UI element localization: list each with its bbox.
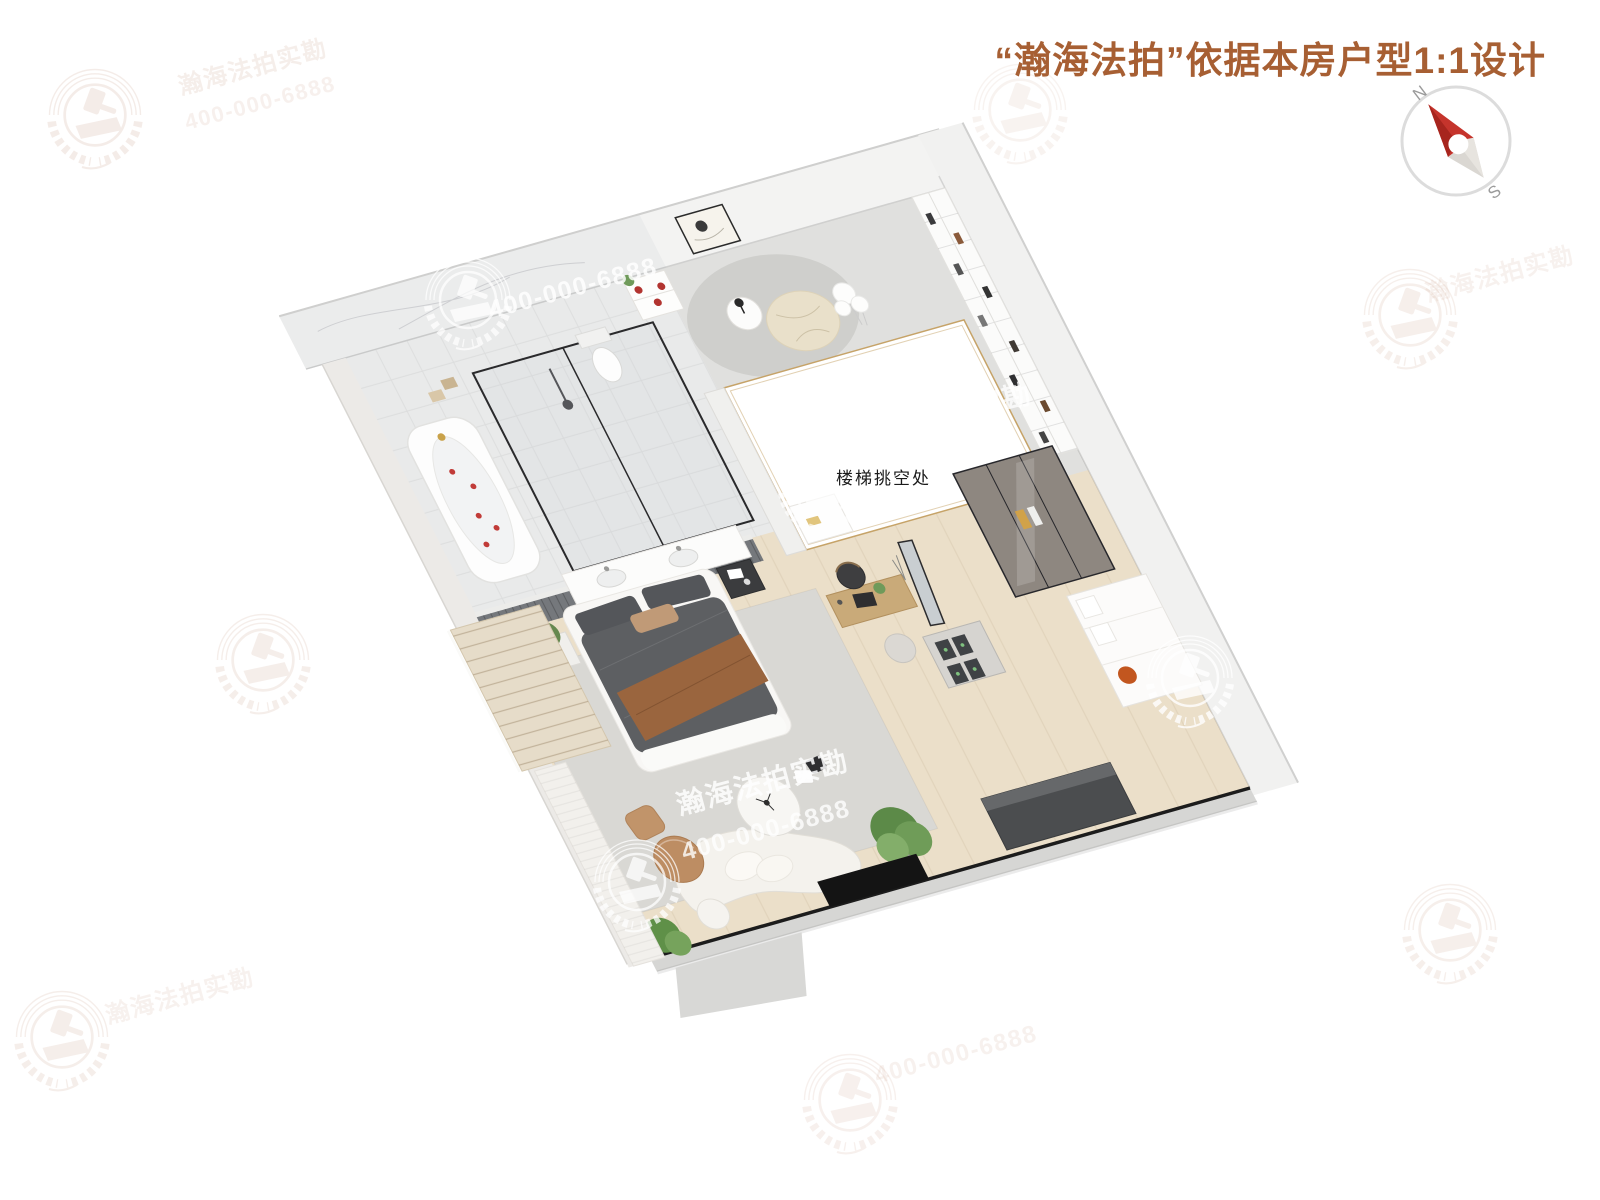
compass-south-label: S xyxy=(1484,181,1504,203)
laurel-gavel-badge-icon xyxy=(975,65,1066,164)
stair-void-label: 楼梯挑空处 xyxy=(836,464,931,489)
watermark-brand: 瀚海法拍实勘 xyxy=(102,963,257,1030)
laurel-gavel-badge-icon xyxy=(1405,885,1496,984)
compass-north-label: N xyxy=(1409,82,1430,105)
laurel-gavel-badge-icon xyxy=(17,992,108,1091)
laurel-gavel-badge-icon xyxy=(50,70,141,169)
watermark-phone: 400-000-6888 xyxy=(872,1020,1041,1089)
floor-plan xyxy=(279,123,1331,1041)
page: “瀚海法拍”依据本房户型1:1设计 xyxy=(0,0,1600,1200)
compass-needle-icon xyxy=(1416,95,1497,188)
watermark-brand: 瀚海法拍实勘 xyxy=(1422,241,1577,308)
laurel-gavel-badge-icon xyxy=(218,615,309,714)
compass: N S xyxy=(1372,57,1540,225)
floor-plan-rendering: 瀚海法拍实勘 400-000-6888 瀚海法拍实勘 400-000-6888 … xyxy=(0,0,1600,1200)
